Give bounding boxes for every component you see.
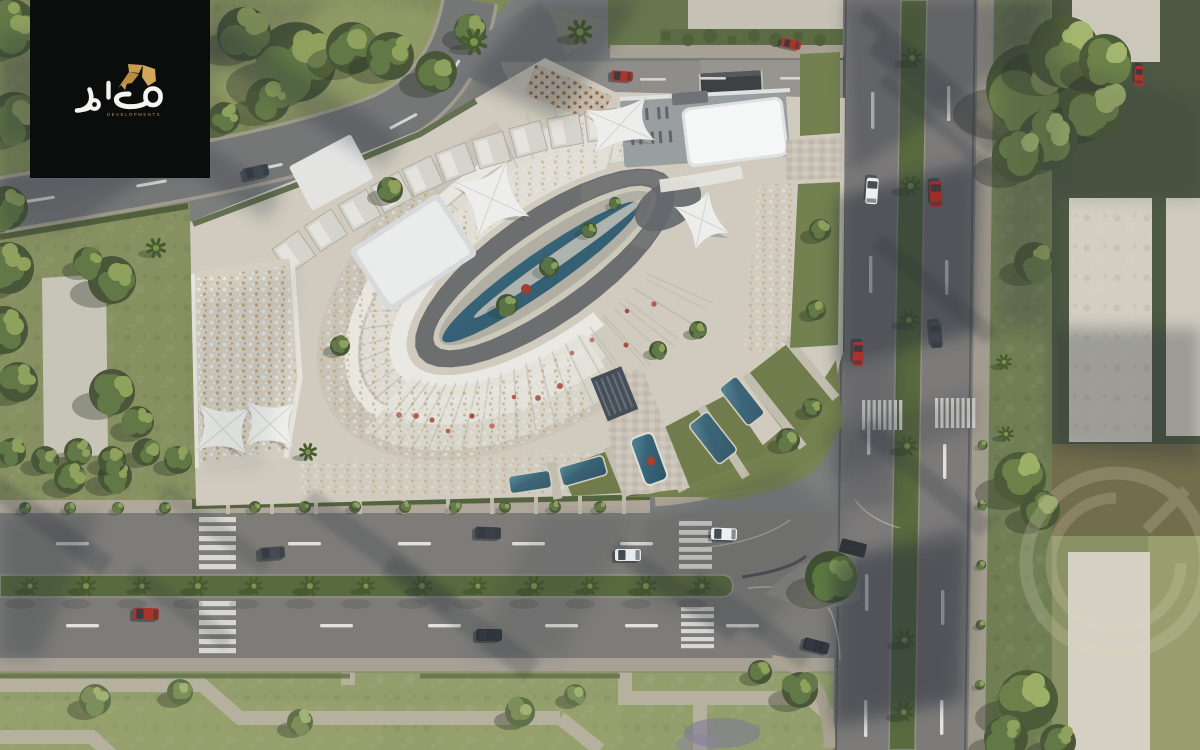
svg-text:DEVELOPMENTS: DEVELOPMENTS (107, 112, 161, 117)
